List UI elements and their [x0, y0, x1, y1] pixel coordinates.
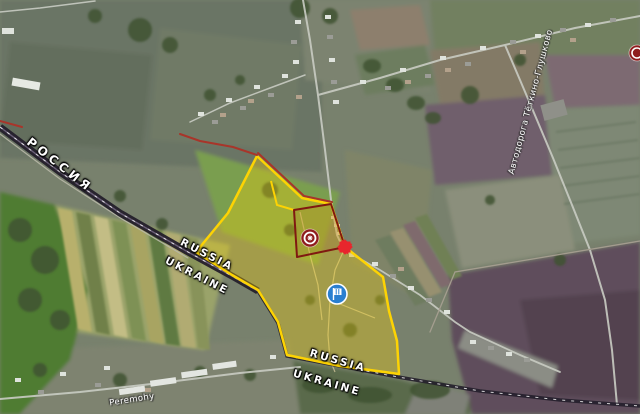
flag-marker[interactable]	[327, 284, 347, 304]
battle-marker[interactable]	[301, 229, 319, 247]
map-viewport[interactable]: РОССИЯ RUSSIA UKRAINE RUSSIA UKRAINE Авт…	[0, 0, 640, 414]
clash-marker[interactable]	[337, 239, 353, 255]
satellite-map	[0, 0, 640, 414]
